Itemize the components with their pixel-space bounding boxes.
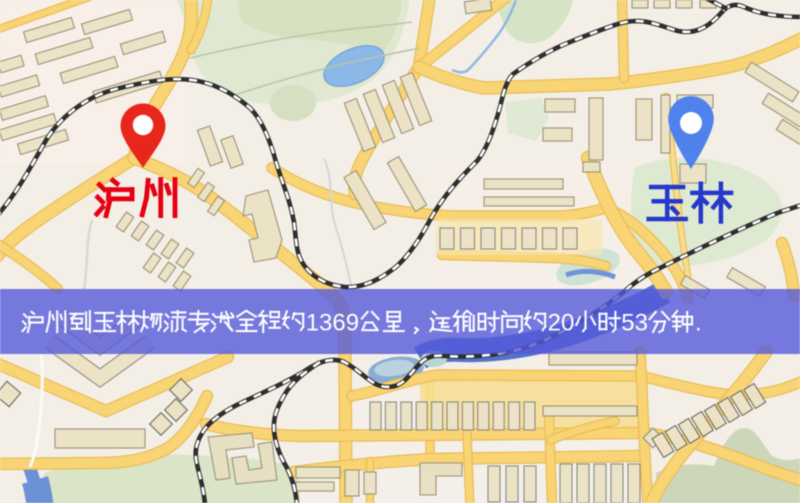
svg-text:20: 20 [548, 310, 575, 337]
svg-text:.: . [695, 310, 702, 337]
svg-text:53: 53 [621, 310, 648, 337]
svg-text:1369: 1369 [306, 310, 359, 337]
